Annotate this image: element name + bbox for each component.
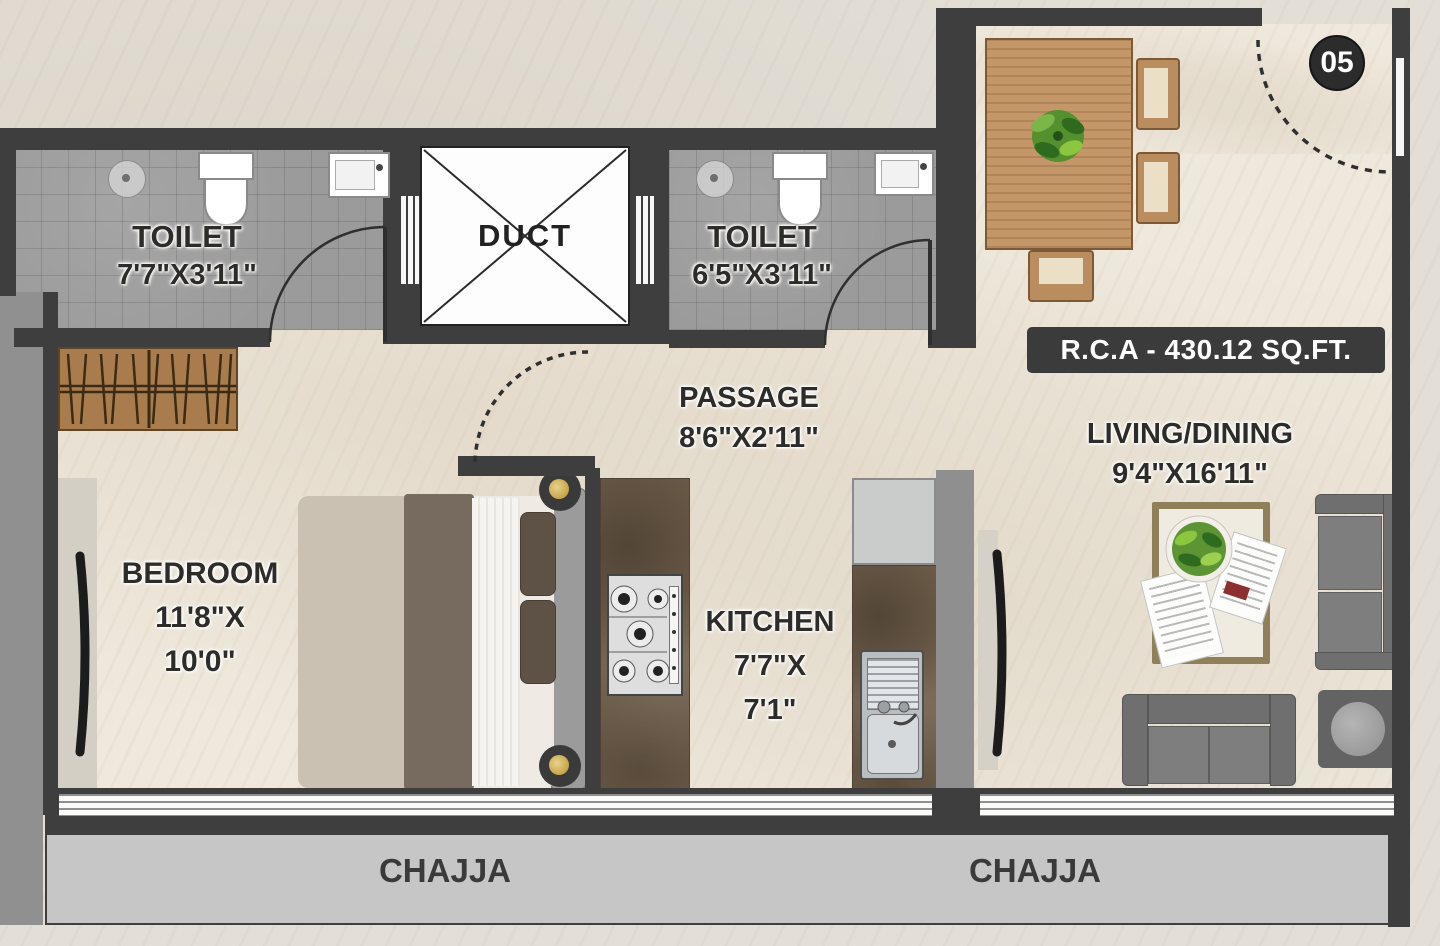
plant-icon [1166,516,1232,582]
duct-label: DUCT [430,218,620,254]
sink-faucet-icon [878,701,916,724]
living-dining-label: LIVING/DINING 9'4"X16'11" [1040,414,1340,494]
unit-number-badge: 05 [1309,35,1365,91]
room-dims: 7'7"X3'11" [62,256,312,294]
room-dims: 8'6"X2'11" [618,418,880,458]
passage-label: PASSAGE 8'6"X2'11" [618,378,880,458]
shower-dots-icon [122,174,718,182]
room-dims: 6'5"X3'11" [637,256,887,294]
plant-icon [1028,110,1087,162]
room-dims: 7'1" [690,688,850,732]
toilet2-label: TOILET 6'5"X3'11" [637,218,887,294]
room-name: DUCT [430,218,620,254]
bedroom-label: BEDROOM 11'8"X 10'0" [95,552,305,684]
kitchen-label: KITCHEN 7'7"X 7'1" [690,600,850,732]
room-name: TOILET [62,218,312,256]
room-name: LIVING/DINING [1040,414,1340,454]
unit-number-text: 05 [1320,46,1353,80]
chajja-text: CHAJJA [379,852,511,889]
area-banner: R.C.A - 430.12 SQ.FT. [1027,327,1385,373]
chajja-text: CHAJJA [969,852,1101,889]
room-dims: 10'0" [95,640,305,684]
room-dims: 11'8"X [95,596,305,640]
room-name: KITCHEN [690,600,850,644]
bedroom-door-swing-icon [475,352,588,465]
chajja-right-label: CHAJJA [890,852,1180,890]
room-name: TOILET [637,218,887,256]
room-name: BEDROOM [95,552,305,596]
room-dims: 9'4"X16'11" [1040,454,1340,494]
bedroom-tv-icon [80,556,85,752]
floor-plan: TOILET 7'7"X3'11" DUCT TOILET 6'5"X3'11"… [0,0,1440,946]
area-banner-text: R.C.A - 430.12 SQ.FT. [1060,334,1351,366]
room-dims: 7'7"X [690,644,850,688]
toilet1-label: TOILET 7'7"X3'11" [62,218,312,294]
room-name: PASSAGE [618,378,880,418]
wardrobe-hangers-icon [60,350,236,428]
chajja-left-label: CHAJJA [300,852,590,890]
stove-burners-icon [609,586,676,682]
living-tv-icon [997,554,1002,752]
